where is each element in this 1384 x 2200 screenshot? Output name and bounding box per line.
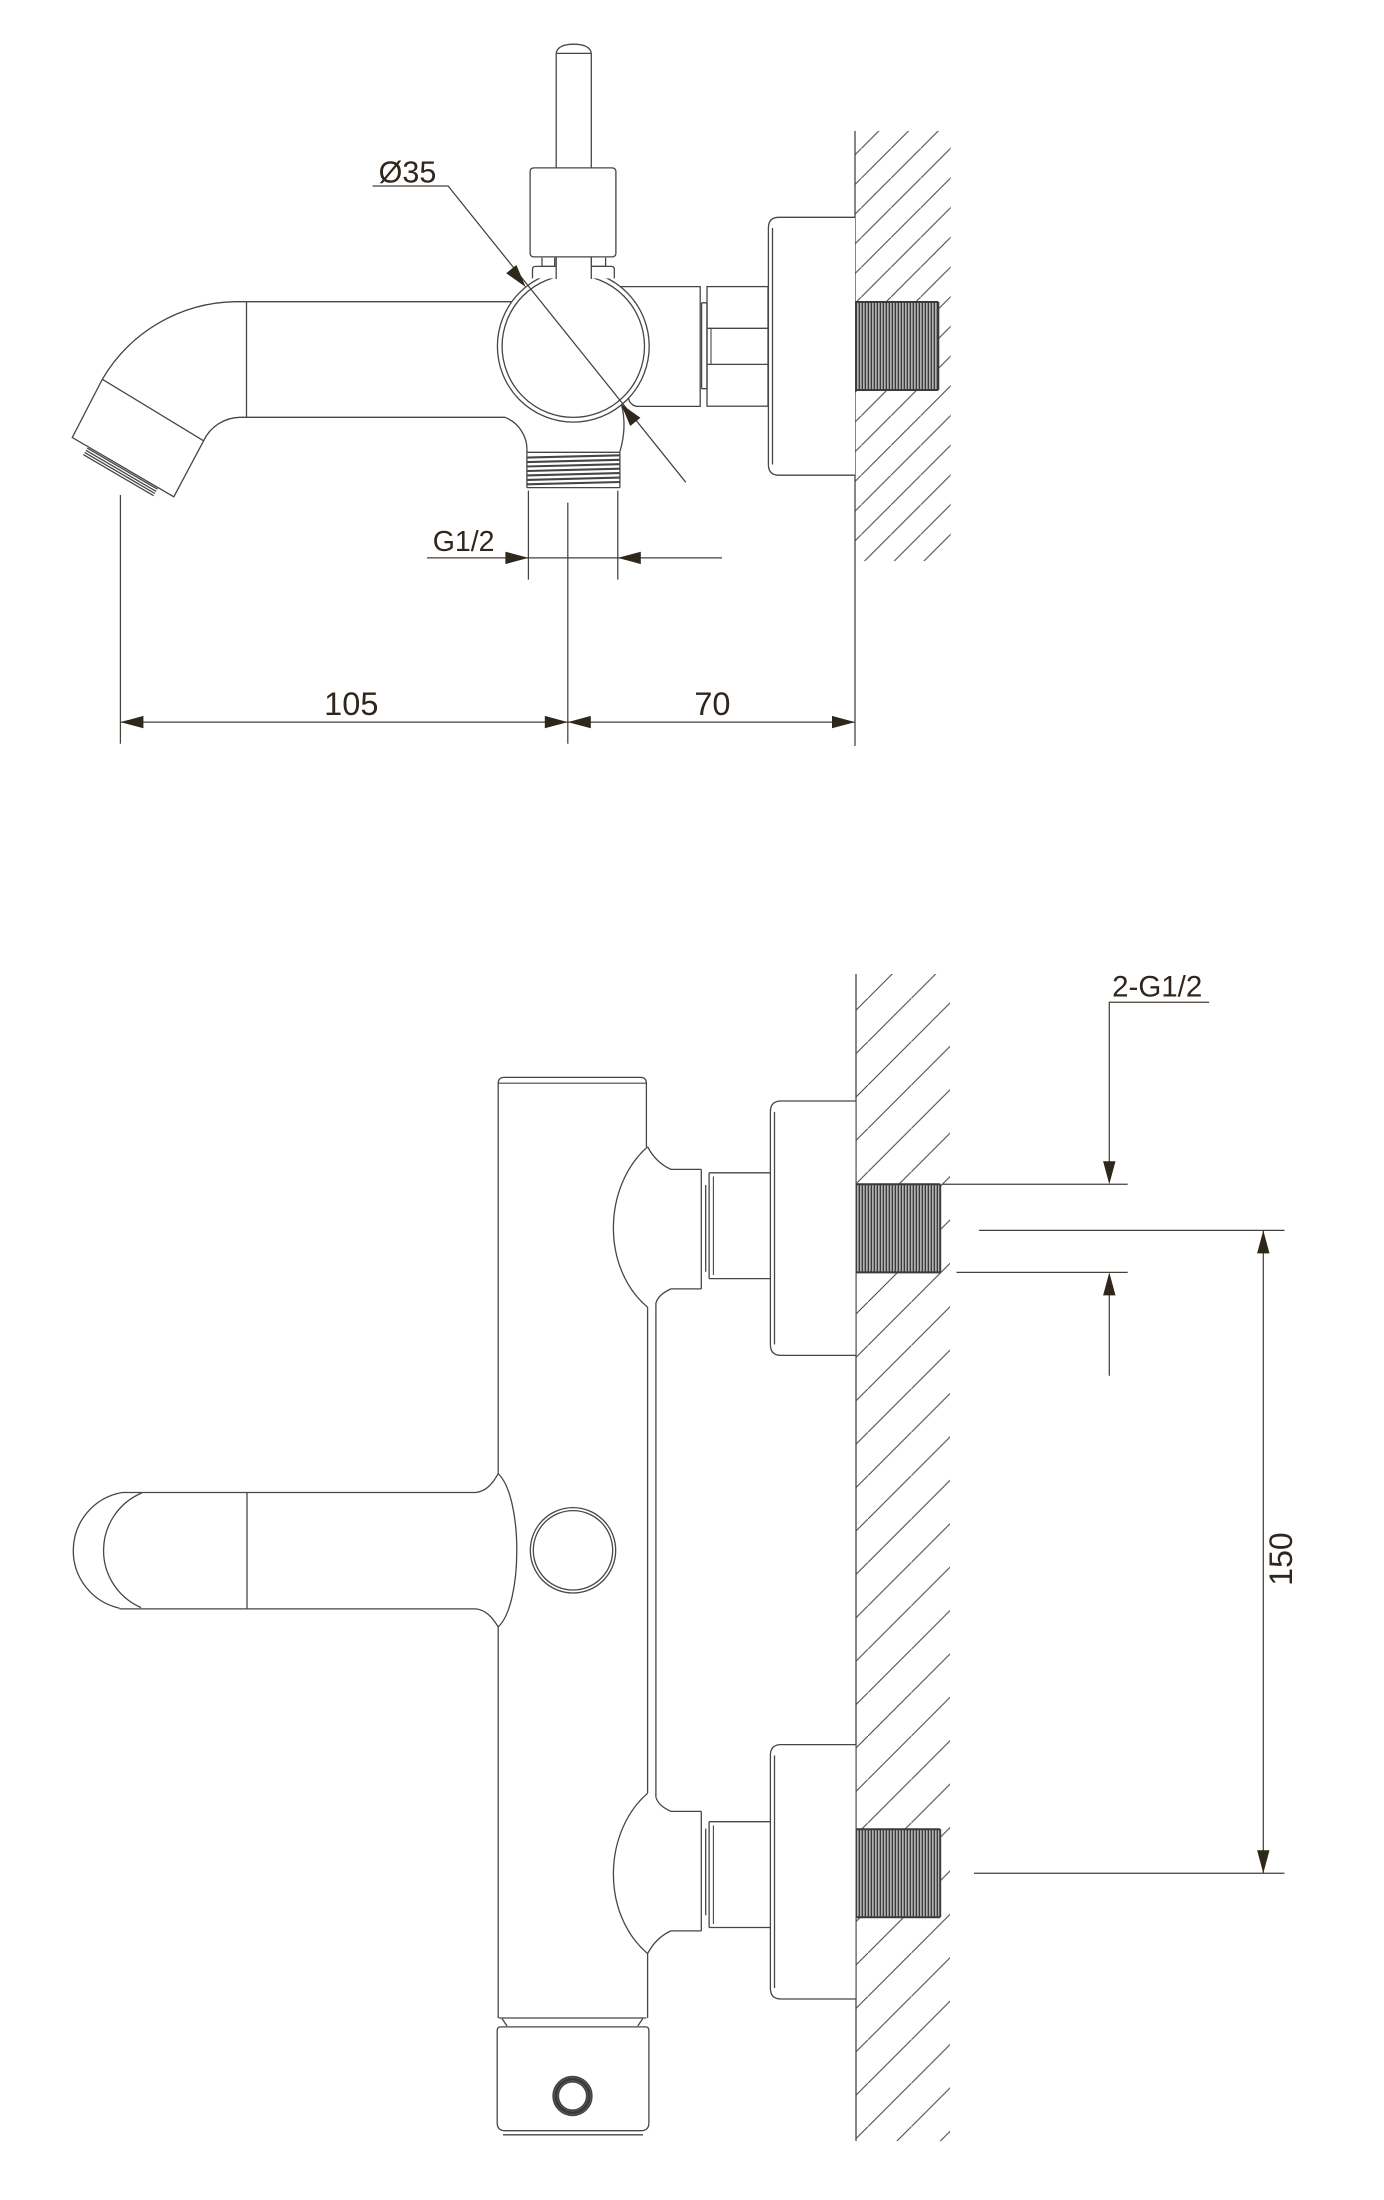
svg-text:150: 150: [1263, 1532, 1299, 1585]
svg-text:2-G1/2: 2-G1/2: [1112, 971, 1202, 1004]
svg-text:Ø35: Ø35: [379, 155, 437, 189]
svg-text:70: 70: [694, 686, 730, 722]
svg-text:G1/2: G1/2: [433, 526, 495, 558]
svg-text:105: 105: [324, 686, 378, 722]
